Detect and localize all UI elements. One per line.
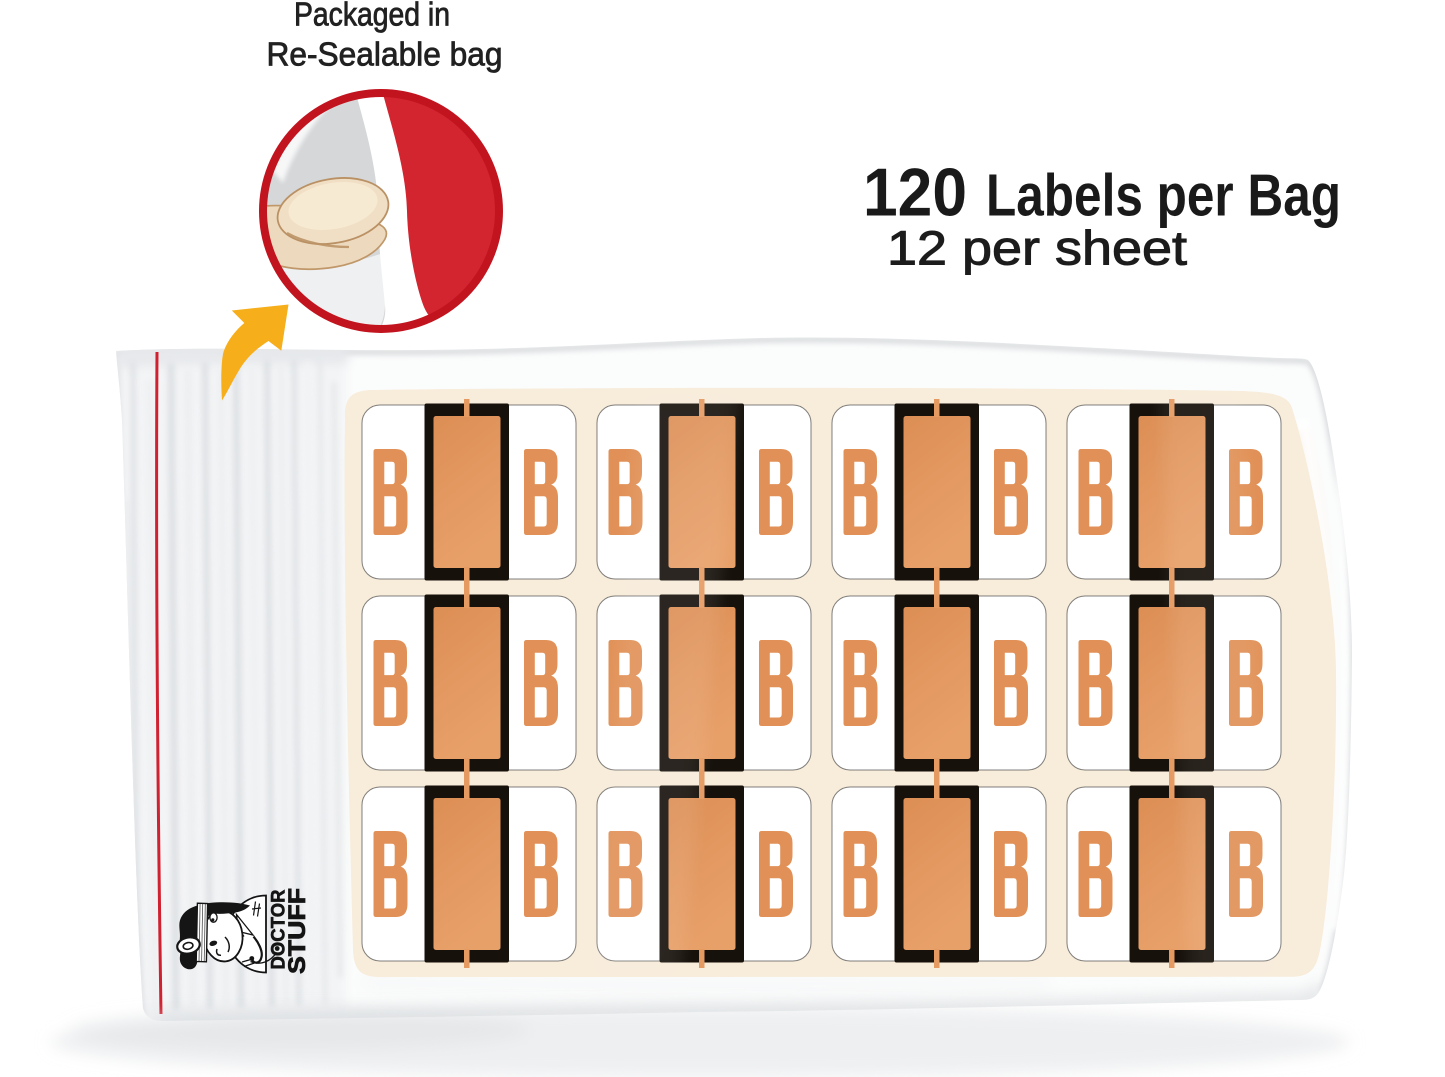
svg-text:Re-Sealable bag: Re-Sealable bag	[267, 36, 503, 73]
svg-text:Labels per Bag: Labels per Bag	[986, 162, 1341, 229]
svg-text:12 per sheet: 12 per sheet	[887, 222, 1188, 276]
svg-text:Packaged in: Packaged in	[294, 0, 450, 33]
svg-text:120: 120	[863, 155, 967, 231]
svg-text:STUFF: STUFF	[284, 888, 311, 974]
